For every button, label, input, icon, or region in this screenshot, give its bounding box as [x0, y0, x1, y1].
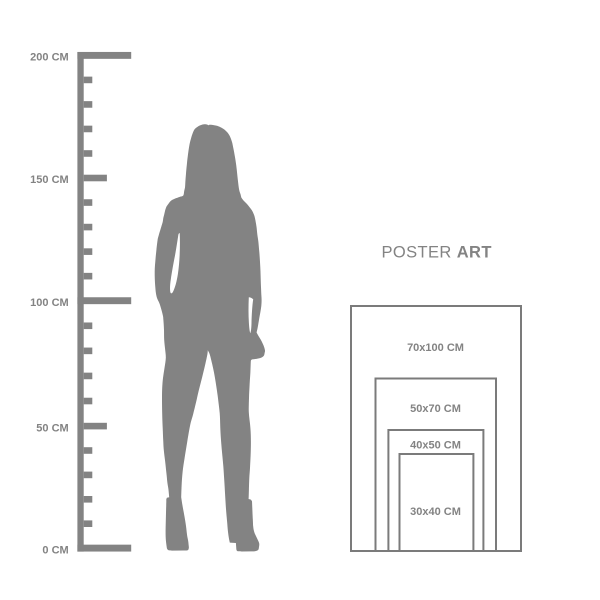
svg-text:70x100 CM: 70x100 CM: [407, 342, 464, 354]
svg-text:POSTER ART: POSTER ART: [382, 244, 492, 262]
svg-text:40x50 CM: 40x50 CM: [410, 440, 461, 452]
svg-text:150 CM: 150 CM: [30, 174, 69, 186]
svg-text:0 CM: 0 CM: [42, 544, 68, 556]
svg-text:200 CM: 200 CM: [30, 52, 69, 64]
svg-text:30x40 CM: 30x40 CM: [410, 506, 461, 518]
svg-text:50x70 CM: 50x70 CM: [410, 403, 461, 415]
svg-text:50 CM: 50 CM: [36, 422, 68, 434]
svg-text:100 CM: 100 CM: [30, 297, 69, 309]
